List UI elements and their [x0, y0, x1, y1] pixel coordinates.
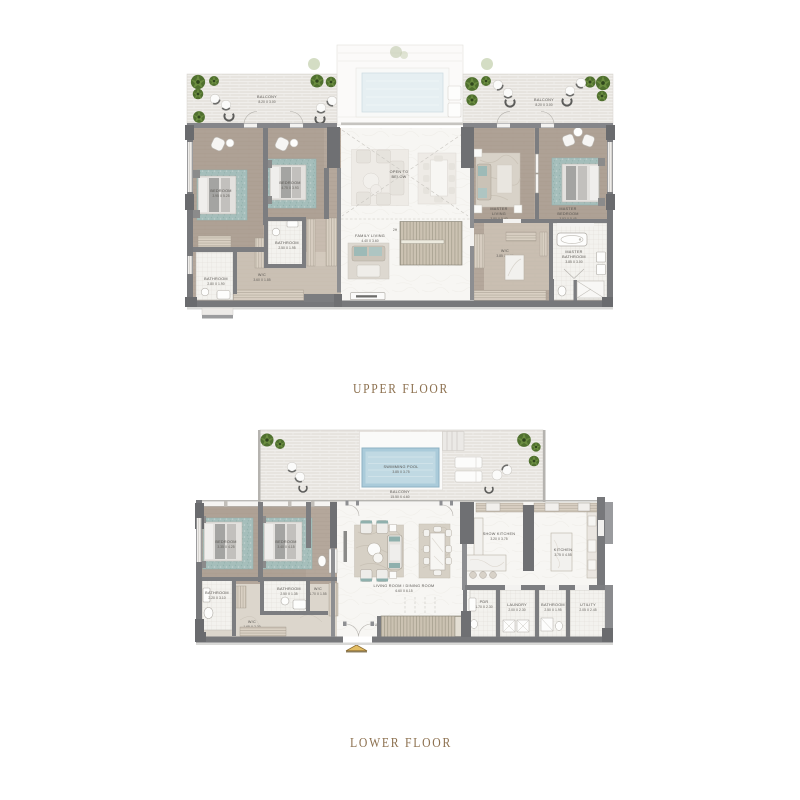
svg-text:PDR: PDR: [480, 600, 489, 604]
svg-text:SHOW KITCHEN: SHOW KITCHEN: [483, 532, 516, 536]
svg-text:6.60 X 6.15: 6.60 X 6.15: [395, 589, 412, 593]
svg-text:LIVING: LIVING: [492, 212, 506, 216]
svg-text:1.70 X 2.30: 1.70 X 2.30: [475, 605, 492, 609]
svg-text:2.50 X 1.95: 2.50 X 1.95: [544, 608, 561, 612]
svg-text:2.20 X 3.10: 2.20 X 3.10: [208, 596, 225, 600]
svg-text:15.50 X 4.60: 15.50 X 4.60: [390, 495, 409, 499]
svg-text:8.20 X 3.00: 8.20 X 3.00: [535, 103, 552, 107]
svg-text:UPPER FLOOR: UPPER FLOOR: [353, 381, 449, 396]
svg-text:UTILITY: UTILITY: [580, 603, 596, 607]
svg-text:3.85 X 3.75: 3.85 X 3.75: [392, 470, 409, 474]
svg-text:BEDROOM: BEDROOM: [215, 540, 236, 544]
svg-text:BATHROOM: BATHROOM: [541, 603, 565, 607]
svg-text:MASTER: MASTER: [490, 207, 507, 211]
svg-text:BEDROOM: BEDROOM: [557, 212, 578, 216]
svg-text:2.05 X 2.45: 2.05 X 2.45: [579, 608, 596, 612]
svg-text:3.85 X 3.00: 3.85 X 3.00: [565, 260, 582, 264]
svg-text:KITCHEN: KITCHEN: [554, 548, 572, 552]
svg-text:MASTER: MASTER: [565, 250, 582, 254]
svg-text:4.75 X 3.93: 4.75 X 3.93: [281, 186, 298, 190]
svg-text:2.00 X 2.30: 2.00 X 2.30: [508, 608, 525, 612]
svg-text:3.20 X 3.75: 3.20 X 3.75: [490, 537, 507, 541]
svg-text:W/C: W/C: [258, 273, 266, 277]
svg-text:BALCONY: BALCONY: [257, 95, 277, 99]
svg-text:W/C: W/C: [248, 620, 256, 624]
svg-text:BELOW: BELOW: [392, 175, 407, 179]
svg-text:BALCONY: BALCONY: [390, 490, 410, 494]
svg-text:4.40 X 3.60: 4.40 X 3.60: [361, 239, 378, 243]
svg-text:BATHROOM: BATHROOM: [562, 255, 586, 259]
svg-text:3.60 X 1.85: 3.60 X 1.85: [253, 278, 270, 282]
svg-text:2.50 X 1.35: 2.50 X 1.35: [280, 592, 297, 596]
svg-text:2.80 X 1.90: 2.80 X 1.90: [207, 282, 224, 286]
svg-text:BATHROOM: BATHROOM: [205, 591, 229, 595]
svg-text:BEDROOM: BEDROOM: [210, 189, 231, 193]
svg-text:BATHROOM: BATHROOM: [277, 587, 301, 591]
svg-text:W/C: W/C: [501, 249, 509, 253]
svg-text:SWIMMING POOL: SWIMMING POOL: [383, 465, 418, 469]
svg-text:MASTER: MASTER: [559, 207, 576, 211]
svg-text:3.95 X 5.25: 3.95 X 5.25: [212, 194, 229, 198]
svg-text:8.20 X 3.00: 8.20 X 3.00: [258, 100, 275, 104]
svg-text:BATHROOM: BATHROOM: [275, 241, 299, 245]
svg-text:LIVING ROOM / DINING ROOM: LIVING ROOM / DINING ROOM: [374, 584, 435, 588]
svg-text:FAMILY LIVING: FAMILY LIVING: [355, 234, 385, 238]
svg-text:BEDROOM: BEDROOM: [275, 540, 296, 544]
svg-text:LOWER FLOOR: LOWER FLOOR: [350, 735, 452, 750]
svg-text:BALCONY: BALCONY: [534, 98, 554, 102]
svg-text:3.40 X 4.15: 3.40 X 4.15: [277, 545, 294, 549]
svg-text:2H: 2H: [393, 228, 398, 232]
svg-text:BATHROOM: BATHROOM: [204, 277, 228, 281]
svg-text:W/C: W/C: [314, 587, 322, 591]
svg-text:2.50 X 1.95: 2.50 X 1.95: [278, 246, 295, 250]
svg-text:OPEN TO: OPEN TO: [390, 170, 409, 174]
svg-text:3.75 X 4.55: 3.75 X 4.55: [554, 553, 571, 557]
svg-text:3.35 X 4.25: 3.35 X 4.25: [217, 545, 234, 549]
svg-text:1.70 X 1.55: 1.70 X 1.55: [309, 592, 326, 596]
svg-text:LAUNDRY: LAUNDRY: [507, 603, 527, 607]
svg-text:BEDROOM: BEDROOM: [279, 181, 300, 185]
